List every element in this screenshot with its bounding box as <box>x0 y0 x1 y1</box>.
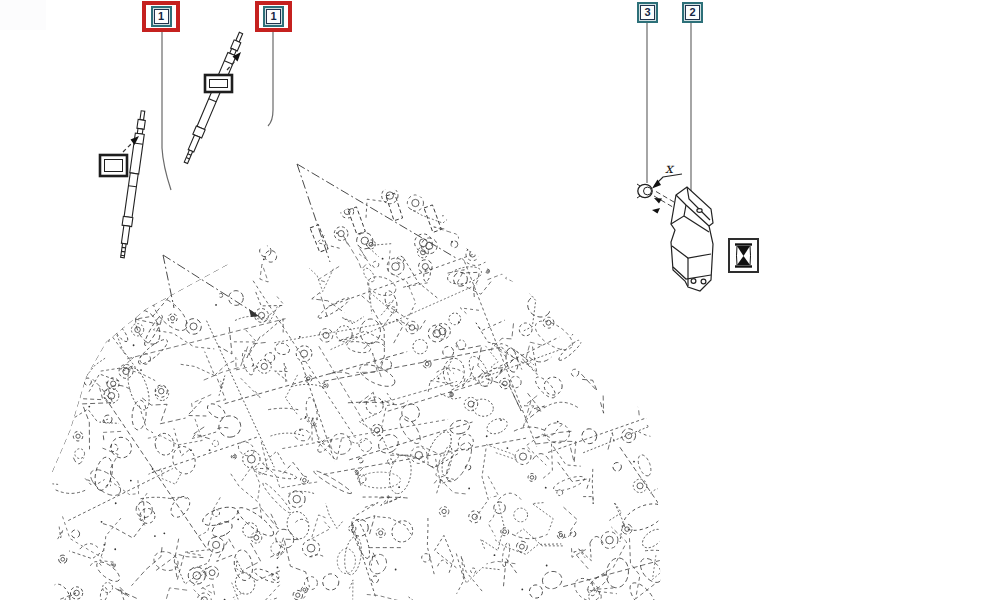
callout-tag[interactable]: 1 <box>151 6 172 27</box>
grommet-part-3[interactable] <box>637 184 652 198</box>
arrow-icon <box>652 208 660 214</box>
dimension-x-label: x <box>665 160 673 176</box>
callout-number: 3 <box>640 5 655 20</box>
hourglass-note-box <box>729 239 758 272</box>
bracket-part-2[interactable] <box>671 187 713 291</box>
installation-leader-lines <box>163 164 456 314</box>
engine-illustration <box>33 187 764 600</box>
dimension-x-pointer <box>652 174 682 189</box>
callout-leader-lines <box>162 20 691 196</box>
callout-number: 1 <box>154 9 169 24</box>
callout-number: 2 <box>685 5 700 20</box>
callout-1-right[interactable]: 1 <box>255 1 292 32</box>
callout-tag[interactable]: 1 <box>263 6 284 27</box>
glow-plug-part-1-left[interactable] <box>118 110 148 258</box>
leader-line-callout-1b <box>268 31 273 126</box>
glow-plug-part-1-right[interactable] <box>181 31 245 165</box>
callout-number: 1 <box>266 9 281 24</box>
corner-shade <box>0 0 46 30</box>
diagram-canvas: 1 1 3 2 x <box>0 0 1000 600</box>
callout-3[interactable]: 3 <box>637 2 658 23</box>
callout-1-left[interactable]: 1 <box>142 1 180 32</box>
leader-line-callout-1a <box>162 31 171 190</box>
engine-line-art <box>0 0 1000 600</box>
arrow-icon <box>654 198 662 204</box>
callout-2[interactable]: 2 <box>682 2 703 23</box>
